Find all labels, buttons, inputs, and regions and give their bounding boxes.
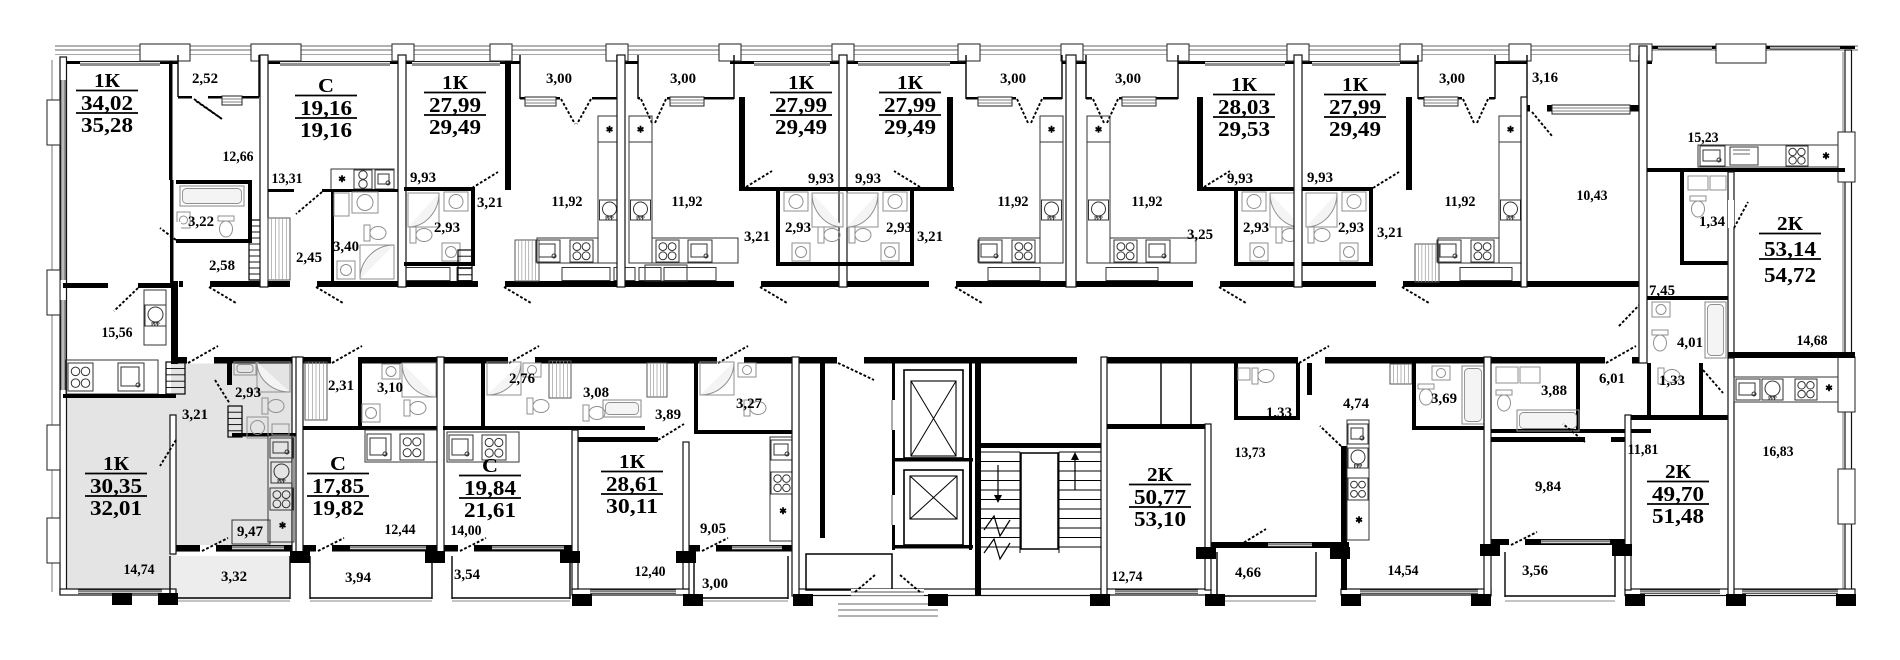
- svg-text:4,01: 4,01: [1677, 335, 1703, 351]
- svg-text:3,22: 3,22: [188, 214, 214, 230]
- svg-text:2,93: 2,93: [886, 220, 912, 236]
- svg-text:2К: 2К: [1147, 464, 1174, 486]
- svg-text:11,92: 11,92: [998, 194, 1029, 210]
- svg-text:1К: 1К: [897, 72, 924, 94]
- svg-text:3,32: 3,32: [221, 569, 247, 585]
- svg-text:ppp: ppp: [277, 479, 286, 484]
- svg-text:С: С: [482, 455, 498, 477]
- svg-text:29,49: 29,49: [429, 115, 481, 139]
- svg-text:9,93: 9,93: [1307, 170, 1333, 186]
- svg-text:34,02: 34,02: [81, 91, 133, 115]
- svg-text:3,21: 3,21: [744, 229, 770, 245]
- svg-text:✱: ✱: [637, 125, 645, 135]
- svg-text:19,84: 19,84: [464, 476, 517, 500]
- svg-text:✱: ✱: [779, 506, 787, 516]
- svg-text:14,68: 14,68: [1797, 333, 1828, 349]
- svg-text:✱: ✱: [1095, 125, 1103, 135]
- svg-text:1К: 1К: [1342, 74, 1369, 96]
- svg-text:11,92: 11,92: [1445, 194, 1476, 210]
- svg-text:3,54: 3,54: [454, 567, 480, 583]
- svg-text:3,08: 3,08: [583, 385, 609, 401]
- svg-text:14,74: 14,74: [124, 562, 155, 578]
- svg-text:✱: ✱: [279, 521, 287, 531]
- svg-text:12,66: 12,66: [223, 149, 254, 165]
- svg-text:ppp: ppp: [605, 216, 614, 221]
- svg-text:1К: 1К: [94, 70, 121, 92]
- svg-text:3,21: 3,21: [477, 195, 503, 211]
- svg-text:11,92: 11,92: [1132, 194, 1163, 210]
- svg-text:✱: ✱: [1507, 125, 1515, 135]
- svg-text:6,01: 6,01: [1599, 371, 1625, 387]
- svg-text:32,01: 32,01: [90, 496, 142, 520]
- svg-text:✱: ✱: [1822, 151, 1830, 161]
- svg-text:✱: ✱: [1048, 125, 1056, 135]
- svg-text:2,58: 2,58: [209, 258, 235, 274]
- svg-text:3,00: 3,00: [1000, 71, 1026, 87]
- svg-text:12,40: 12,40: [635, 564, 666, 580]
- svg-text:3,27: 3,27: [736, 396, 762, 412]
- svg-text:4,74: 4,74: [1343, 396, 1369, 412]
- svg-text:53,14: 53,14: [1764, 237, 1817, 261]
- svg-text:ppp: ppp: [1047, 216, 1056, 221]
- svg-text:ppp: ppp: [1506, 216, 1515, 221]
- svg-text:9,05: 9,05: [700, 521, 726, 537]
- svg-text:53,10: 53,10: [1134, 507, 1186, 531]
- svg-text:9,93: 9,93: [808, 171, 834, 187]
- svg-text:ppp: ppp: [1768, 396, 1777, 401]
- svg-text:1К: 1К: [619, 451, 646, 473]
- svg-text:2,93: 2,93: [1243, 220, 1269, 236]
- svg-text:С: С: [318, 75, 334, 97]
- svg-text:1К: 1К: [1231, 74, 1258, 96]
- svg-text:2,76: 2,76: [509, 371, 535, 387]
- svg-text:1К: 1К: [442, 72, 469, 94]
- svg-text:27,99: 27,99: [1329, 95, 1381, 119]
- svg-text:35,28: 35,28: [81, 113, 133, 137]
- svg-text:3,40: 3,40: [333, 239, 359, 255]
- svg-text:15,56: 15,56: [102, 325, 133, 341]
- svg-text:3,21: 3,21: [182, 407, 208, 423]
- svg-text:14,00: 14,00: [451, 523, 482, 539]
- svg-text:11,92: 11,92: [552, 194, 583, 210]
- svg-text:3,10: 3,10: [377, 380, 403, 396]
- svg-text:27,99: 27,99: [429, 93, 481, 117]
- svg-text:2,31: 2,31: [328, 378, 354, 394]
- svg-text:3,00: 3,00: [546, 71, 572, 87]
- svg-text:3,00: 3,00: [1439, 71, 1465, 87]
- svg-text:2,93: 2,93: [1338, 220, 1364, 236]
- svg-text:3,69: 3,69: [1431, 391, 1457, 407]
- svg-text:1,33: 1,33: [1659, 373, 1685, 389]
- svg-text:15,23: 15,23: [1688, 130, 1719, 146]
- svg-text:49,70: 49,70: [1652, 482, 1704, 506]
- svg-text:30,35: 30,35: [90, 474, 142, 498]
- svg-text:17,85: 17,85: [312, 474, 364, 498]
- svg-text:19,16: 19,16: [300, 118, 352, 142]
- svg-text:2К: 2К: [1665, 461, 1692, 483]
- svg-text:28,61: 28,61: [606, 472, 658, 496]
- svg-text:1,34: 1,34: [1699, 214, 1725, 230]
- svg-text:54,72: 54,72: [1764, 263, 1816, 287]
- svg-text:19,16: 19,16: [300, 96, 352, 120]
- svg-text:21,61: 21,61: [464, 498, 516, 522]
- svg-text:9,93: 9,93: [855, 171, 881, 187]
- svg-text:ppp: ppp: [151, 322, 160, 327]
- svg-text:50,77: 50,77: [1134, 485, 1186, 509]
- svg-text:3,00: 3,00: [1115, 71, 1141, 87]
- svg-text:12,44: 12,44: [385, 522, 416, 538]
- svg-text:3,25: 3,25: [1187, 227, 1213, 243]
- svg-text:19,82: 19,82: [312, 496, 364, 520]
- svg-text:29,49: 29,49: [775, 115, 827, 139]
- svg-text:9,93: 9,93: [410, 170, 436, 186]
- svg-text:27,99: 27,99: [775, 93, 827, 117]
- svg-text:11,81: 11,81: [1628, 442, 1659, 458]
- svg-text:2К: 2К: [1777, 213, 1804, 235]
- svg-text:✱: ✱: [606, 125, 614, 135]
- svg-text:2,45: 2,45: [296, 250, 322, 266]
- svg-text:10,43: 10,43: [1577, 188, 1608, 204]
- svg-text:2,52: 2,52: [192, 71, 218, 87]
- svg-text:3,00: 3,00: [670, 71, 696, 87]
- svg-text:3,89: 3,89: [655, 407, 681, 423]
- svg-text:9,84: 9,84: [1535, 479, 1561, 495]
- svg-text:14,54: 14,54: [1388, 563, 1419, 579]
- svg-text:2,93: 2,93: [785, 220, 811, 236]
- svg-text:13,73: 13,73: [1235, 445, 1266, 461]
- svg-text:3,00: 3,00: [702, 576, 728, 592]
- svg-text:29,49: 29,49: [1329, 117, 1381, 141]
- svg-text:✱: ✱: [338, 174, 346, 184]
- svg-text:3,21: 3,21: [917, 229, 943, 245]
- svg-text:12,74: 12,74: [1112, 569, 1143, 585]
- svg-text:2,93: 2,93: [235, 385, 261, 401]
- svg-text:28,03: 28,03: [1218, 95, 1270, 119]
- svg-text:9,47: 9,47: [237, 524, 263, 540]
- svg-text:27,99: 27,99: [884, 93, 936, 117]
- svg-text:2,93: 2,93: [434, 220, 460, 236]
- svg-text:9,93: 9,93: [1227, 171, 1253, 187]
- svg-text:1К: 1К: [788, 72, 815, 94]
- svg-text:3,56: 3,56: [1522, 563, 1548, 579]
- svg-text:11,92: 11,92: [672, 194, 703, 210]
- svg-text:3,16: 3,16: [1532, 70, 1558, 86]
- svg-text:4,66: 4,66: [1235, 565, 1261, 581]
- svg-text:3,94: 3,94: [345, 570, 371, 586]
- svg-text:1,33: 1,33: [1266, 405, 1292, 421]
- svg-text:16,83: 16,83: [1763, 444, 1794, 460]
- svg-text:29,53: 29,53: [1218, 117, 1270, 141]
- svg-text:✱: ✱: [1355, 515, 1363, 525]
- svg-text:51,48: 51,48: [1652, 504, 1704, 528]
- svg-text:ppp: ppp: [636, 216, 645, 221]
- svg-text:13,31: 13,31: [272, 171, 303, 187]
- svg-text:3,21: 3,21: [1377, 225, 1403, 241]
- svg-text:✱: ✱: [1825, 383, 1833, 393]
- svg-text:1К: 1К: [103, 453, 130, 475]
- svg-text:ppp: ppp: [1094, 216, 1103, 221]
- svg-text:30,11: 30,11: [606, 494, 658, 518]
- svg-text:ppp: ppp: [1354, 464, 1363, 469]
- svg-text:С: С: [330, 453, 346, 475]
- svg-text:3,88: 3,88: [1541, 383, 1567, 399]
- svg-text:29,49: 29,49: [884, 115, 936, 139]
